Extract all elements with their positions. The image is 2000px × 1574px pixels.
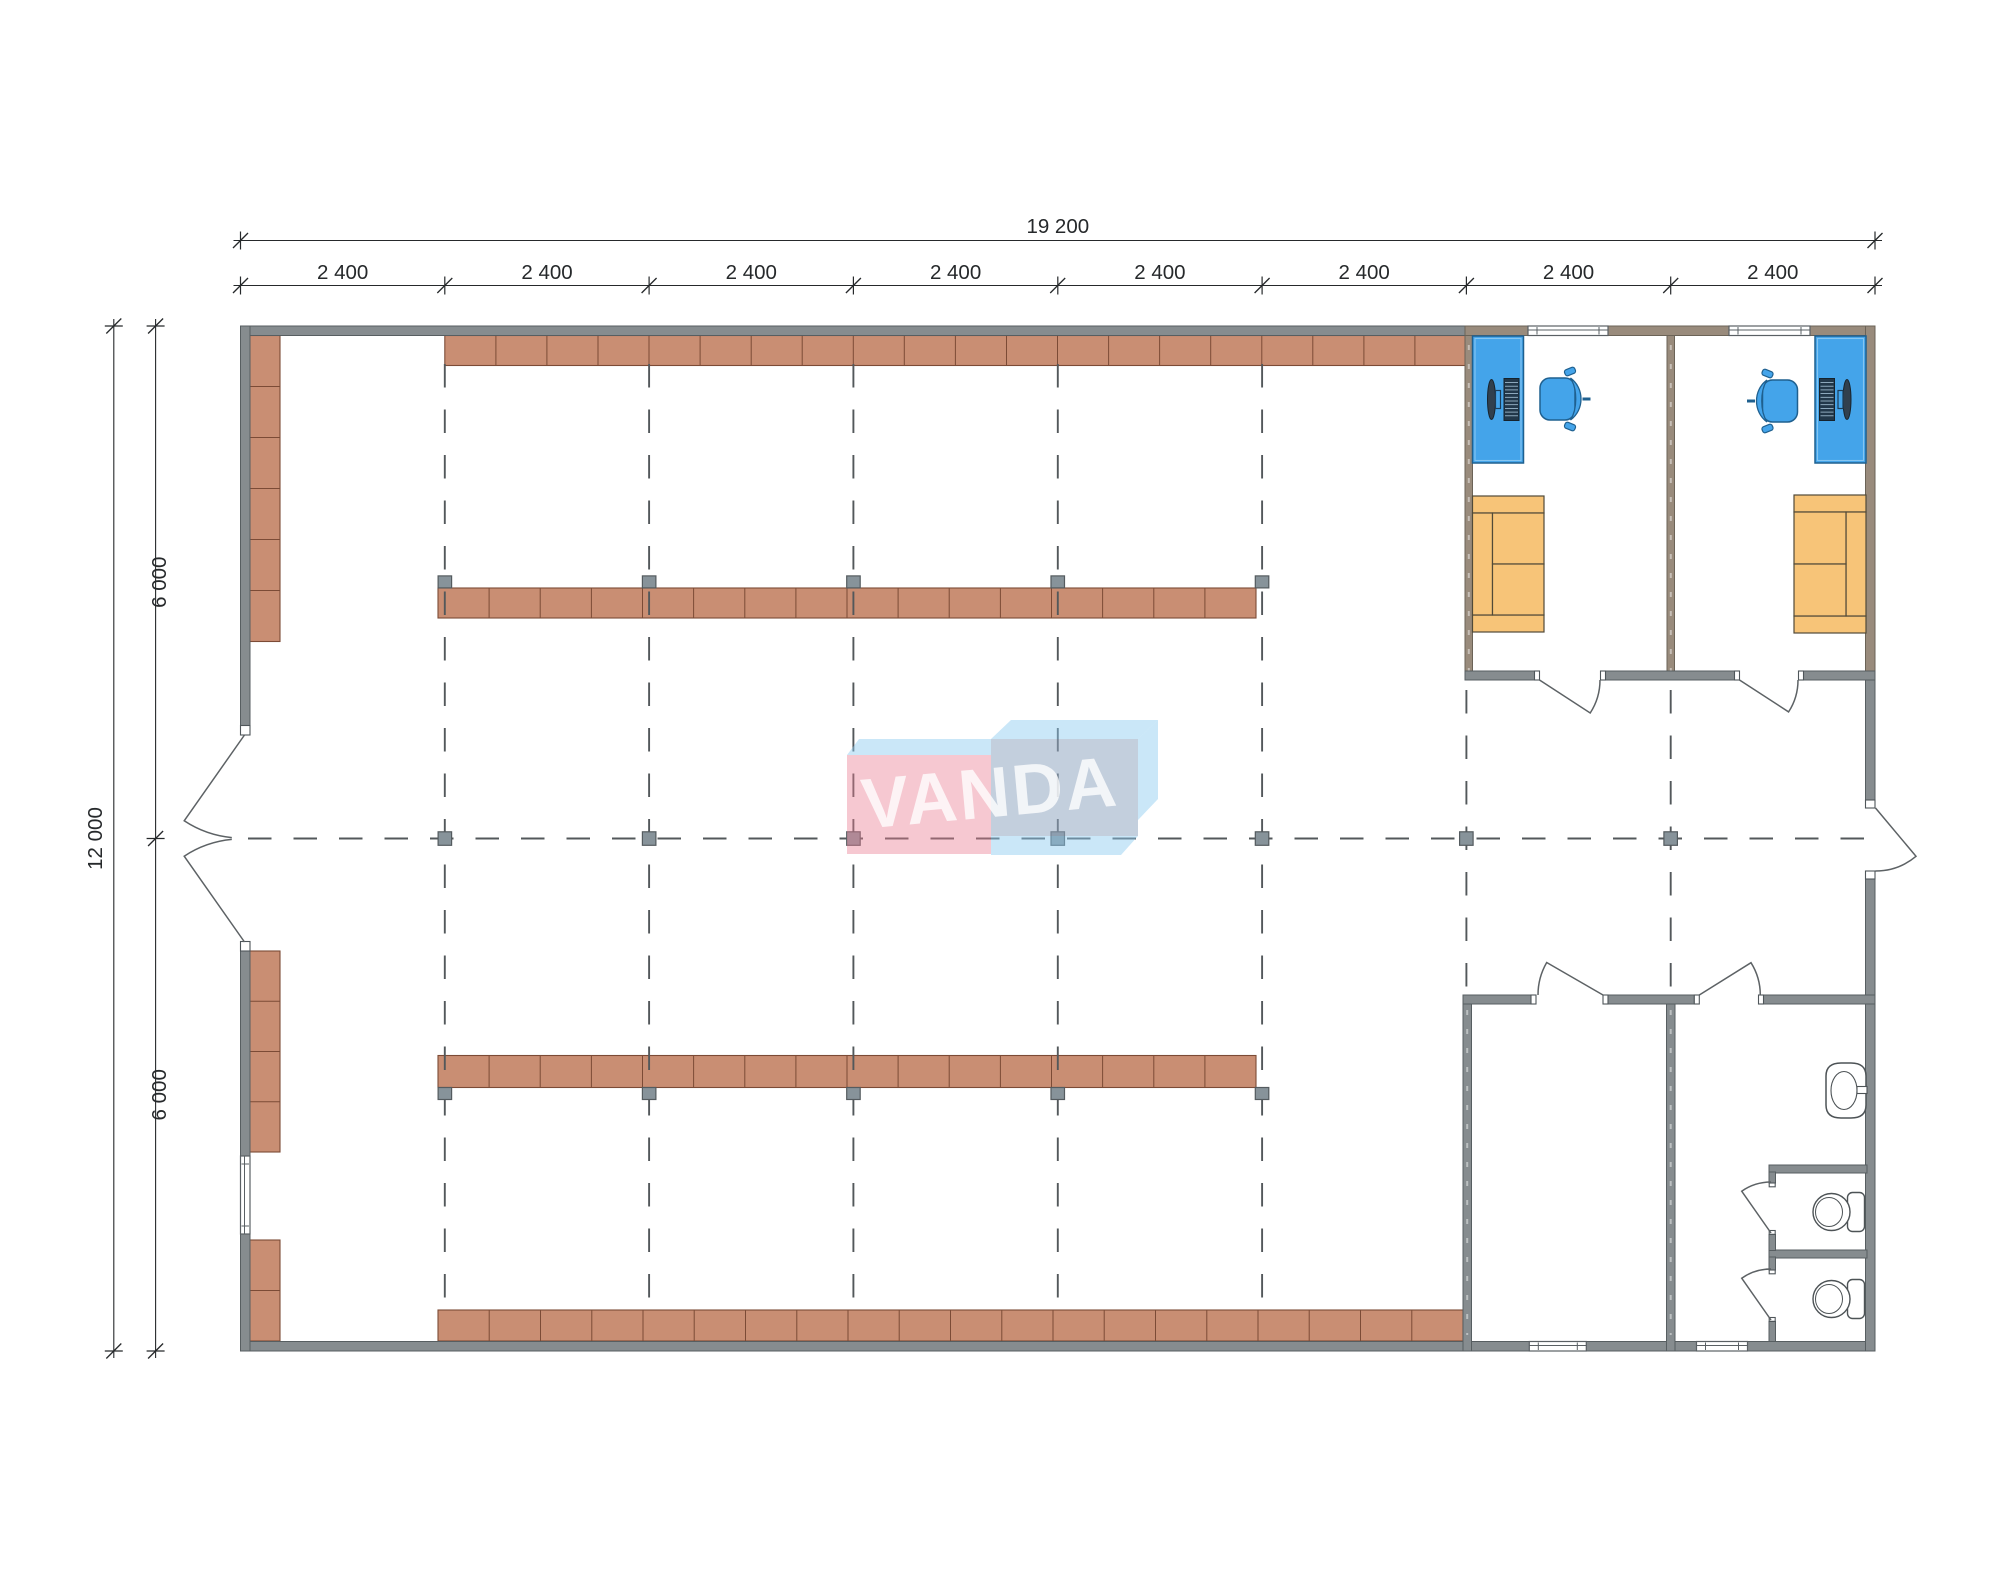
- svg-text:2 400: 2 400: [1543, 261, 1594, 284]
- svg-text:6 000: 6 000: [148, 1069, 171, 1120]
- svg-text:2 400: 2 400: [1134, 261, 1185, 284]
- svg-text:19 200: 19 200: [1026, 215, 1089, 238]
- svg-text:2 400: 2 400: [726, 261, 777, 284]
- svg-text:12 000: 12 000: [84, 807, 107, 870]
- svg-text:2 400: 2 400: [1339, 261, 1390, 284]
- svg-text:2 400: 2 400: [521, 261, 572, 284]
- svg-text:2 400: 2 400: [1747, 261, 1798, 284]
- svg-text:2 400: 2 400: [317, 261, 368, 284]
- svg-text:2 400: 2 400: [930, 261, 981, 284]
- svg-text:6 000: 6 000: [148, 557, 171, 608]
